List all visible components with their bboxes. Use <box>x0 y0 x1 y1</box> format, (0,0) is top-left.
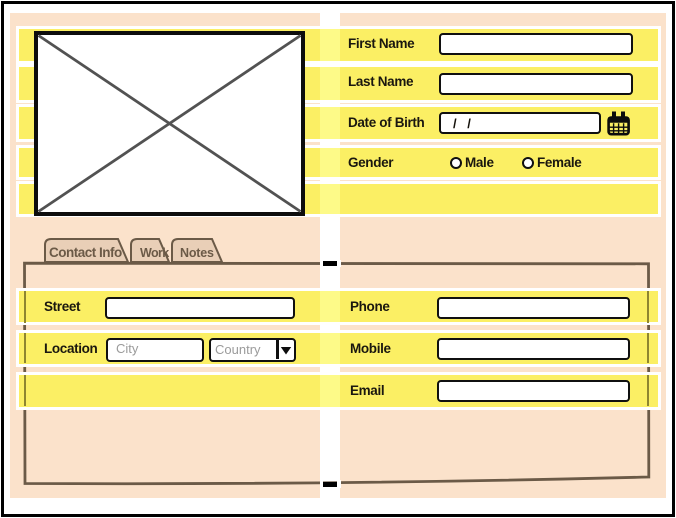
svg-text:Contact Info: Contact Info <box>49 245 122 260</box>
svg-text:Work: Work <box>140 246 169 260</box>
svg-text:Notes: Notes <box>180 246 214 260</box>
